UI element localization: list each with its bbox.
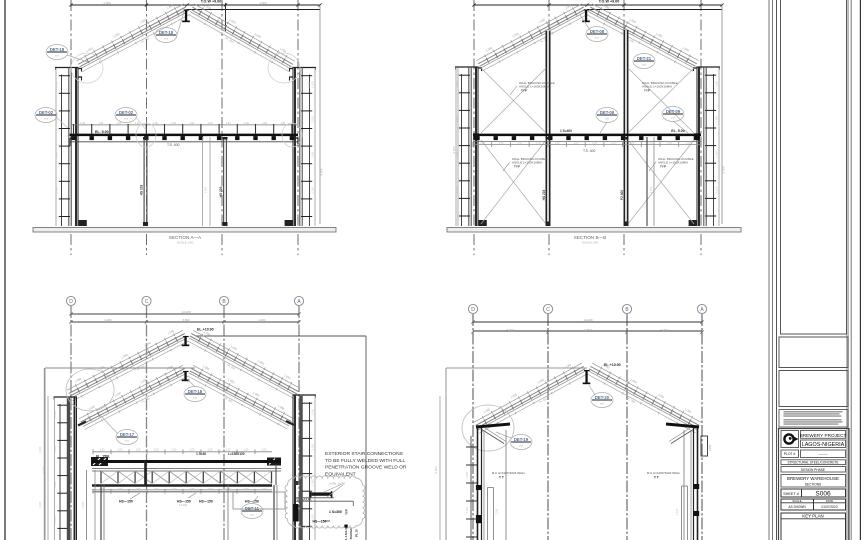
- svg-text:1.100: 1.100: [310, 151, 314, 158]
- svg-text:1.00: 1.00: [190, 488, 195, 491]
- svg-text:HS 203: HS 203: [219, 186, 223, 197]
- svg-text:1.100: 1.100: [55, 151, 59, 158]
- svg-text:D: D: [69, 299, 73, 305]
- svg-text:HS 203: HS 203: [542, 189, 546, 200]
- svg-text:T T: T T: [499, 476, 504, 480]
- svg-text:DET-08: DET-08: [590, 29, 605, 34]
- svg-text:1.100: 1.100: [310, 479, 314, 486]
- svg-text:1.000: 1.000: [259, 1, 267, 5]
- svg-text:EL. 5.00: EL. 5.00: [95, 130, 109, 134]
- svg-text:S006: S006: [815, 491, 831, 498]
- svg-text:DET-02: DET-02: [39, 110, 54, 115]
- svg-text:SECTION B—B: SECTION B—B: [574, 235, 606, 240]
- svg-text:L 50x50x6: L 50x50x6: [349, 528, 353, 540]
- svg-text:1.050: 1.050: [465, 506, 469, 513]
- svg-text:1.050: 1.050: [708, 444, 712, 451]
- svg-text:1.050: 1.050: [465, 471, 469, 478]
- svg-text:9.000: 9.000: [42, 466, 46, 473]
- svg-text:HS 203: HS 203: [140, 184, 144, 195]
- svg-text:TYP: TYP: [660, 164, 666, 168]
- svg-text:TYP: TYP: [345, 509, 349, 515]
- svg-text:1.00: 1.00: [686, 141, 691, 144]
- svg-text:01/07/2023: 01/07/2023: [822, 505, 838, 509]
- svg-text:TYP: TYP: [521, 88, 527, 92]
- svg-text:LAGOS-NIGERIA: LAGOS-NIGERIA: [802, 442, 845, 448]
- svg-text:EL. 5.00: EL. 5.00: [671, 129, 685, 133]
- svg-text:1.00: 1.00: [611, 141, 616, 144]
- svg-text:1.100: 1.100: [310, 187, 314, 194]
- svg-text:1.050: 1.050: [307, 81, 311, 88]
- svg-text:SCALE 1/50: SCALE 1/50: [177, 241, 194, 245]
- svg-text:HS—150: HS—150: [313, 520, 327, 524]
- svg-text:1.100: 1.100: [55, 187, 59, 194]
- svg-text:1.00: 1.00: [648, 141, 653, 144]
- svg-text:1.100: 1.100: [38, 501, 42, 508]
- svg-text:PL 10: PL 10: [355, 529, 359, 537]
- svg-text:DET-18: DET-18: [50, 47, 65, 52]
- svg-text:DET-19: DET-19: [514, 437, 529, 442]
- svg-text:1 S=300: 1 S=300: [329, 510, 342, 514]
- svg-text:1.00: 1.00: [190, 449, 195, 452]
- svg-text:1.00: 1.00: [574, 141, 579, 144]
- svg-text:1.050: 1.050: [649, 186, 653, 193]
- svg-text:4.200: 4.200: [259, 318, 266, 322]
- svg-text:BREWERY WAREHOUSE: BREWERY WAREHOUSE: [787, 476, 839, 481]
- svg-text:1.100: 1.100: [310, 116, 314, 123]
- svg-text:1.00: 1.00: [262, 488, 267, 491]
- svg-text:DET-20: DET-20: [595, 395, 610, 400]
- svg-text:1.00: 1.00: [100, 449, 105, 452]
- svg-text:14.200: 14.200: [179, 503, 187, 507]
- svg-text:STRUCTURAL STEEL/CONCRETE: STRUCTURAL STEEL/CONCRETE: [787, 461, 838, 465]
- svg-text:1.00: 1.00: [499, 141, 504, 144]
- svg-text:BREWERY PROJECT: BREWERY PROJECT: [800, 433, 847, 438]
- svg-text:1.00: 1.00: [630, 141, 635, 144]
- svg-text:T.O.W +9.00: T.O.W +9.00: [201, 0, 222, 4]
- svg-text:1.00: 1.00: [98, 122, 103, 125]
- svg-text:EXTERIOR STAIR CONNECTIONS: EXTERIOR STAIR CONNECTIONS: [325, 451, 404, 457]
- svg-text:1.00: 1.00: [118, 488, 123, 491]
- svg-text:1.00: 1.00: [153, 122, 158, 125]
- svg-text:TO BE FULLY WELDED WITH FULL: TO BE FULLY WELDED WITH FULL: [325, 458, 405, 464]
- svg-text:DET-09: DET-09: [666, 109, 681, 114]
- svg-text:AS SHOWN: AS SHOWN: [788, 505, 806, 509]
- svg-text:T.S. 400: T.S. 400: [167, 143, 180, 147]
- svg-text:T.O.W +9.00: T.O.W +9.00: [599, 0, 620, 4]
- svg-text:SHEET #: SHEET #: [783, 492, 800, 496]
- svg-text:KEY PLAN: KEY PLAN: [802, 514, 823, 519]
- svg-text:C: C: [546, 307, 550, 313]
- svg-text:1.00: 1.00: [136, 449, 141, 452]
- svg-text:1.00: 1.00: [118, 449, 123, 452]
- svg-text:1.00: 1.00: [480, 141, 485, 144]
- svg-text:1.00: 1.00: [135, 122, 140, 125]
- svg-text:DESIGN PHASE: DESIGN PHASE: [801, 468, 825, 472]
- svg-text:1.100: 1.100: [81, 501, 85, 508]
- svg-text:1.00: 1.00: [244, 122, 249, 125]
- svg-text:PENETRATION GROOVE WELD OR: PENETRATION GROOVE WELD OR: [325, 465, 407, 471]
- svg-text:L=75(...)x100: L=75(...)x100: [329, 482, 345, 486]
- svg-text:-------: -------: [818, 451, 828, 456]
- svg-text:4.200: 4.200: [507, 328, 514, 332]
- svg-text:1.00: 1.00: [262, 122, 267, 125]
- svg-text:1.00: 1.00: [117, 122, 122, 125]
- svg-text:1.100: 1.100: [714, 116, 718, 123]
- svg-text:9.000: 9.000: [434, 466, 438, 473]
- svg-text:HS—150: HS—150: [119, 500, 133, 504]
- svg-text:1.00: 1.00: [592, 141, 597, 144]
- svg-text:TYP: TYP: [644, 88, 650, 92]
- svg-text:TYP: TYP: [514, 164, 520, 168]
- svg-text:1.00: 1.00: [154, 488, 159, 491]
- svg-text:9.000: 9.000: [320, 168, 324, 175]
- svg-text:1.100: 1.100: [714, 186, 718, 193]
- svg-text:4.200: 4.200: [661, 328, 668, 332]
- svg-text:1.00: 1.00: [262, 449, 267, 452]
- svg-text:9.000: 9.000: [722, 166, 726, 173]
- svg-text:1.00: 1.00: [517, 141, 522, 144]
- svg-text:5.800: 5.800: [585, 328, 592, 332]
- svg-text:1.00: 1.00: [154, 449, 159, 452]
- svg-text:HS—150: HS—150: [199, 500, 213, 504]
- svg-text:1.050: 1.050: [204, 186, 208, 193]
- svg-text:1.000: 1.000: [103, 1, 111, 5]
- svg-text:1.00: 1.00: [536, 141, 541, 144]
- svg-text:1.100: 1.100: [53, 410, 57, 417]
- svg-text:1.00: 1.00: [280, 122, 285, 125]
- svg-text:1.100: 1.100: [714, 151, 718, 158]
- svg-text:1.00: 1.00: [208, 122, 213, 125]
- svg-text:1.00: 1.00: [172, 449, 177, 452]
- svg-text:SECTIONS: SECTIONS: [805, 483, 821, 487]
- svg-text:1.00: 1.00: [208, 488, 213, 491]
- svg-text:T T: T T: [654, 476, 659, 480]
- svg-text:1.00: 1.00: [171, 122, 176, 125]
- svg-text:1 S=40: 1 S=40: [196, 452, 206, 456]
- svg-text:1.00: 1.00: [189, 122, 194, 125]
- svg-text:1.100: 1.100: [53, 446, 57, 453]
- svg-text:DET-09: DET-09: [600, 110, 615, 115]
- svg-text:P2 400: P2 400: [620, 190, 624, 200]
- svg-text:PLOT #: PLOT #: [784, 452, 796, 456]
- svg-text:DATE: DATE: [826, 499, 833, 503]
- svg-text:1.00: 1.00: [80, 122, 85, 125]
- svg-text:R.C w=1024*1024 WALL: R.C w=1024*1024 WALL: [492, 471, 526, 475]
- svg-text:DET-02: DET-02: [119, 110, 134, 115]
- svg-text:SCALE 1/50: SCALE 1/50: [582, 241, 599, 245]
- svg-text:1.00: 1.00: [667, 141, 672, 144]
- svg-text:DET-21: DET-21: [637, 56, 652, 61]
- svg-text:1.00: 1.00: [226, 122, 231, 125]
- svg-text:1.100: 1.100: [714, 80, 718, 87]
- svg-text:SCALE: SCALE: [792, 499, 801, 503]
- svg-text:1.00: 1.00: [244, 488, 249, 491]
- svg-text:1.00: 1.00: [555, 141, 560, 144]
- svg-text:C: C: [145, 299, 149, 305]
- svg-text:DET-18: DET-18: [188, 389, 203, 394]
- svg-text:1.100: 1.100: [310, 408, 314, 415]
- svg-text:HS—150: HS—150: [245, 500, 259, 504]
- svg-text:DET-18: DET-18: [159, 30, 174, 35]
- svg-text:1.00: 1.00: [172, 488, 177, 491]
- svg-text:1.100: 1.100: [53, 481, 57, 488]
- svg-text:R.C w=1024*1024 WALL: R.C w=1024*1024 WALL: [647, 471, 681, 475]
- svg-text:1.100: 1.100: [675, 508, 679, 515]
- svg-text:1.100: 1.100: [53, 516, 57, 523]
- svg-text:4.200: 4.200: [105, 318, 112, 322]
- svg-text:1.100: 1.100: [55, 81, 59, 88]
- svg-text:1.00: 1.00: [136, 488, 141, 491]
- svg-text:D: D: [471, 307, 475, 313]
- svg-text:1.100: 1.100: [38, 446, 42, 453]
- svg-text:1.100: 1.100: [495, 508, 499, 515]
- svg-text:T.S. 400: T.S. 400: [583, 149, 596, 153]
- svg-text:SECTION A—A: SECTION A—A: [169, 235, 202, 240]
- svg-text:1 S=400: 1 S=400: [560, 129, 572, 133]
- svg-text:DET-17: DET-17: [120, 432, 135, 437]
- svg-text:HS—150: HS—150: [177, 500, 191, 504]
- svg-text:9.000: 9.000: [452, 146, 456, 153]
- svg-text:L=150X100: L=150X100: [228, 452, 245, 456]
- svg-text:L 1.5x1.5: L 1.5x1.5: [344, 528, 348, 540]
- svg-text:DET-11: DET-11: [245, 506, 260, 511]
- svg-text:1.100: 1.100: [310, 444, 314, 451]
- svg-text:5.800: 5.800: [183, 318, 190, 322]
- svg-text:1.00: 1.00: [208, 449, 213, 452]
- svg-text:14.200: 14.200: [583, 318, 593, 322]
- svg-text:14.200: 14.200: [181, 310, 191, 314]
